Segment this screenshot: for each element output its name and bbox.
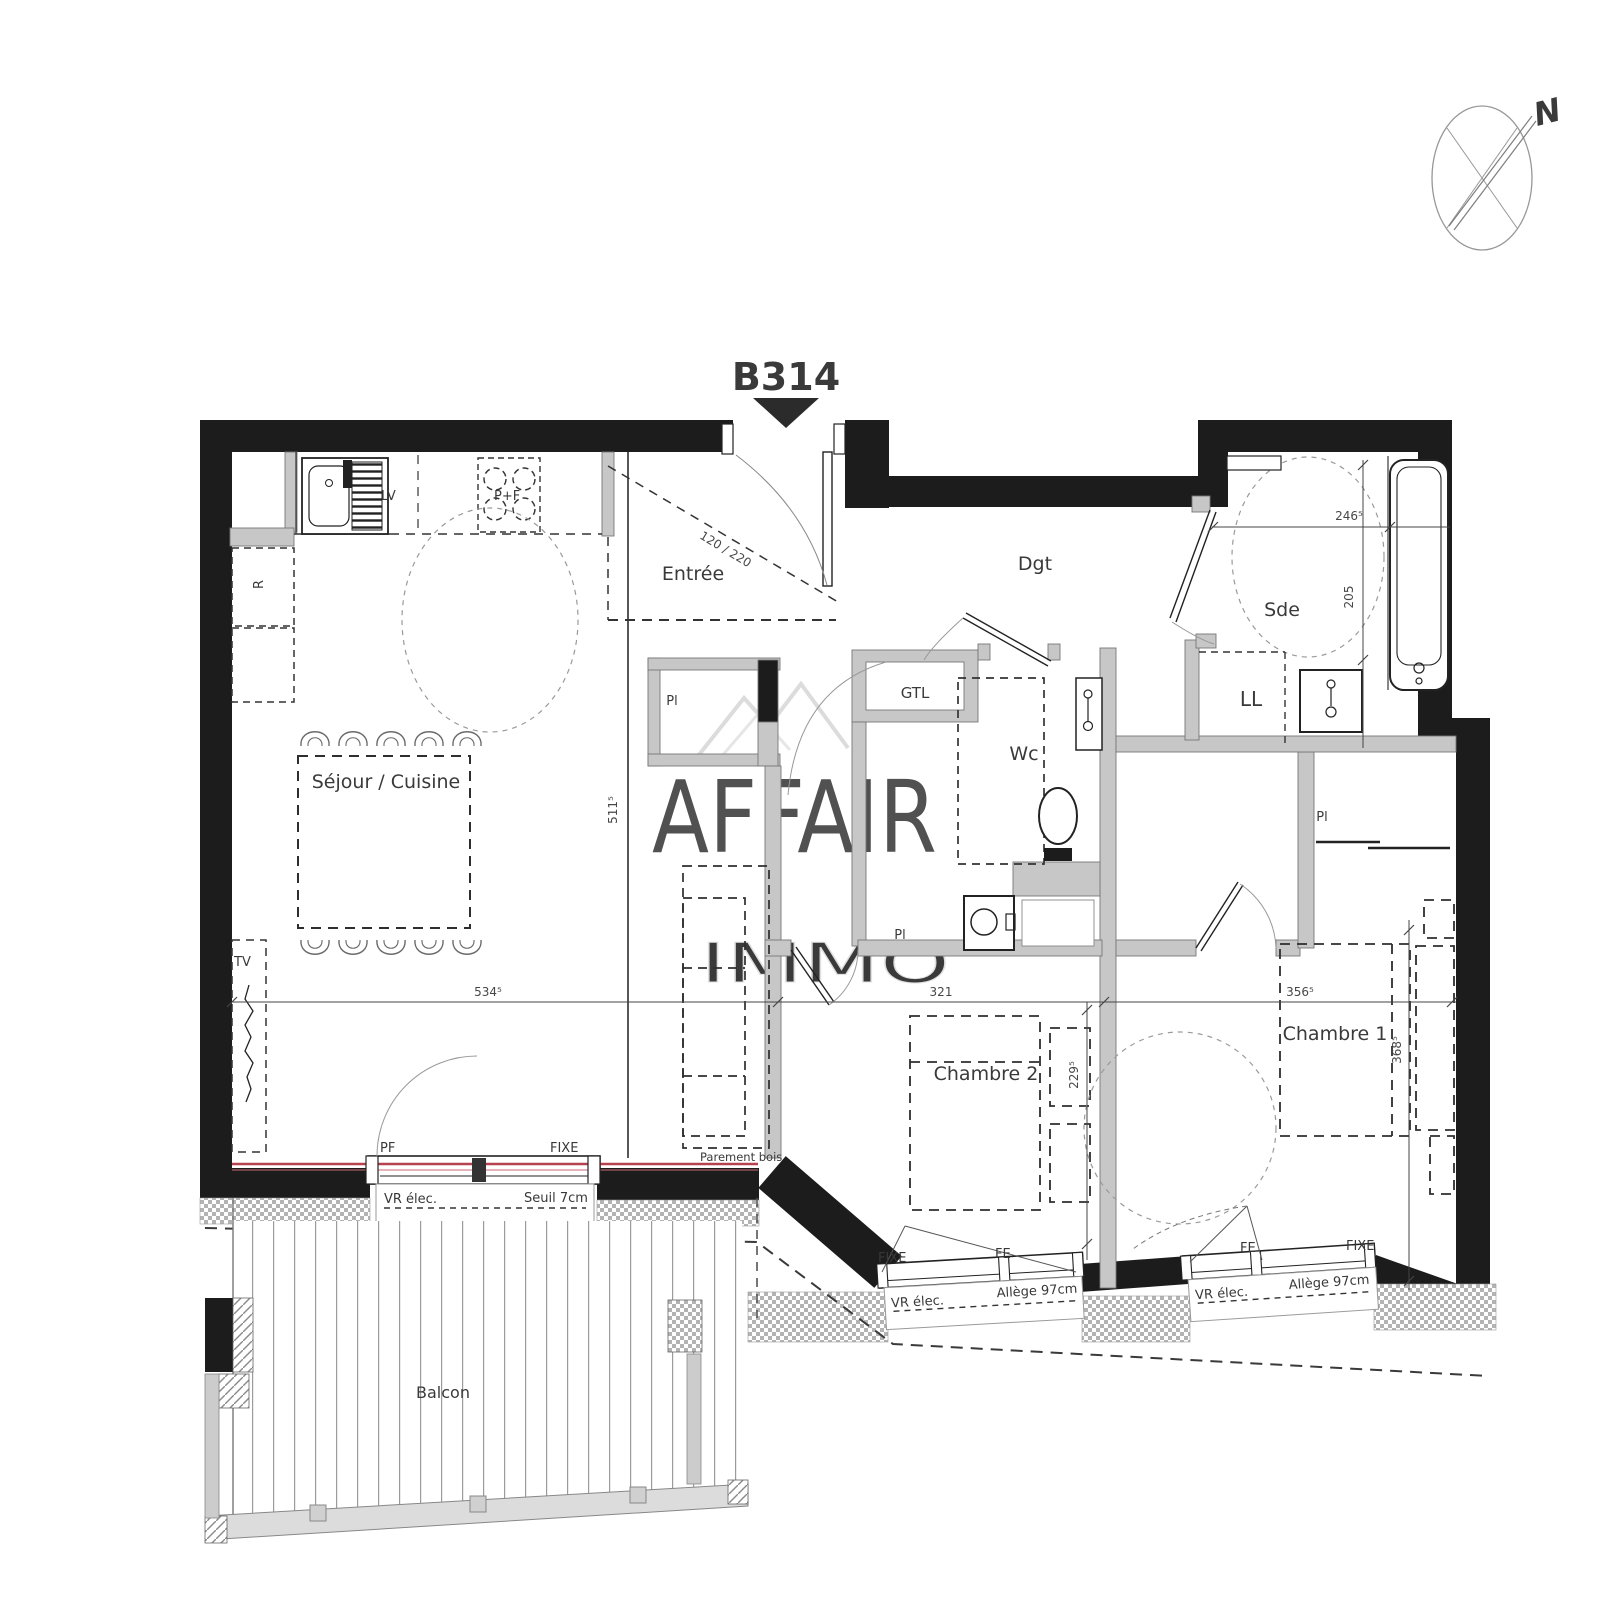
compass: N [1432, 90, 1565, 250]
sofa [683, 866, 769, 1148]
fixe-label-ch1: FIXE [1346, 1239, 1374, 1254]
fridge-label: R [252, 580, 267, 589]
pf-label: PF [380, 1141, 395, 1156]
room-label-balcon: Balcon [416, 1383, 470, 1402]
dim-ch1-h: 368⁵ [1390, 1036, 1404, 1064]
label-pl-entree: Pl [666, 694, 677, 709]
sde-washbasin [1300, 670, 1362, 732]
window-ch1: VR élec. Allège 97cm [1181, 1243, 1379, 1322]
parement-label: Parement bois [700, 1150, 782, 1164]
north-label: N [1530, 90, 1565, 133]
bathtub [1388, 456, 1448, 690]
fe-label-ch2: FE [995, 1247, 1011, 1262]
dim-sejour-h: 511⁵ [606, 796, 620, 824]
room-label-ch2: Chambre 2 [934, 1063, 1039, 1085]
dim-ch1-w: 356⁵ [1286, 985, 1314, 999]
wardrobe-ch1-b [1416, 946, 1454, 1130]
seuil-label: Seuil 7cm [524, 1191, 588, 1206]
turning-circle-sejour [402, 508, 578, 732]
label-ll: LL [1240, 687, 1263, 711]
fe-label-ch1: FE [1240, 1241, 1256, 1256]
dim-sejour-w: 534⁵ [474, 985, 502, 999]
toilet-tank [1044, 848, 1072, 861]
wardrobe-ch1-a [1424, 900, 1454, 938]
wardrobe-ch1-c [1430, 1136, 1454, 1194]
floor-plan-drawing: AFFAIR IMMO B314 N [0, 0, 1600, 1600]
unit-marker: B314 [732, 355, 840, 428]
room-label-wc: Wc [1009, 743, 1038, 765]
fixe-label-ch2: FIXE [878, 1251, 906, 1266]
label-gtl: GTL [901, 684, 930, 702]
closet-sliding-door [1316, 842, 1450, 848]
unit-label: B314 [732, 355, 840, 399]
vr-label-balcony: VR élec. [384, 1192, 437, 1207]
room-label-sejour: Séjour / Cuisine [312, 771, 460, 793]
watermark-brand: AFFAIR [652, 759, 937, 876]
window-ch2: VR élec. Allège 97cm [877, 1252, 1086, 1330]
dim-ch2-h: 229⁵ [1067, 1061, 1081, 1089]
fixe-label-balcony: FIXE [550, 1141, 578, 1156]
dim-sde-h: 205 [1342, 586, 1356, 609]
chambre1-room [1084, 842, 1454, 1224]
fridge [232, 548, 294, 702]
room-label-ch1: Chambre 1 [1283, 1023, 1388, 1045]
tv-cable [245, 985, 253, 1102]
room-label-entree: Entrée [662, 563, 724, 585]
wc-sink [1076, 678, 1102, 750]
dim-ch2-w: 321 [930, 985, 953, 999]
entrance-door-leaf [823, 452, 832, 586]
label-pl-ch1: Pl [1316, 810, 1327, 825]
dim-sde-w: 246⁵ [1335, 509, 1363, 523]
cooktop-label: P+F [494, 489, 520, 504]
chambre1-door [1196, 882, 1276, 951]
toilet-icon [1039, 788, 1077, 844]
tv-unit [232, 940, 266, 1152]
chairs [301, 732, 481, 955]
balcony [205, 1198, 757, 1543]
entrance-door-arc [736, 455, 827, 585]
unit-arrow-icon [753, 398, 819, 428]
room-label-sde: Sde [1264, 599, 1300, 621]
floor-plan-page: AFFAIR IMMO B314 N [0, 0, 1600, 1600]
dishwasher-label: LV [381, 489, 396, 504]
turning-circle-sde [1232, 457, 1384, 657]
balcony-deck [233, 1221, 742, 1520]
tv-label: TV [233, 955, 251, 970]
watermark-mountain-icon-2 [722, 714, 790, 756]
sde-shelf [1227, 456, 1281, 470]
bed-ch2 [910, 1016, 1040, 1210]
label-pl-wc: Pl [894, 928, 905, 943]
room-label-dgt: Dgt [1018, 553, 1052, 575]
kitchen-sink [302, 458, 388, 534]
vr-label-ch2: VR élec. [891, 1293, 945, 1311]
